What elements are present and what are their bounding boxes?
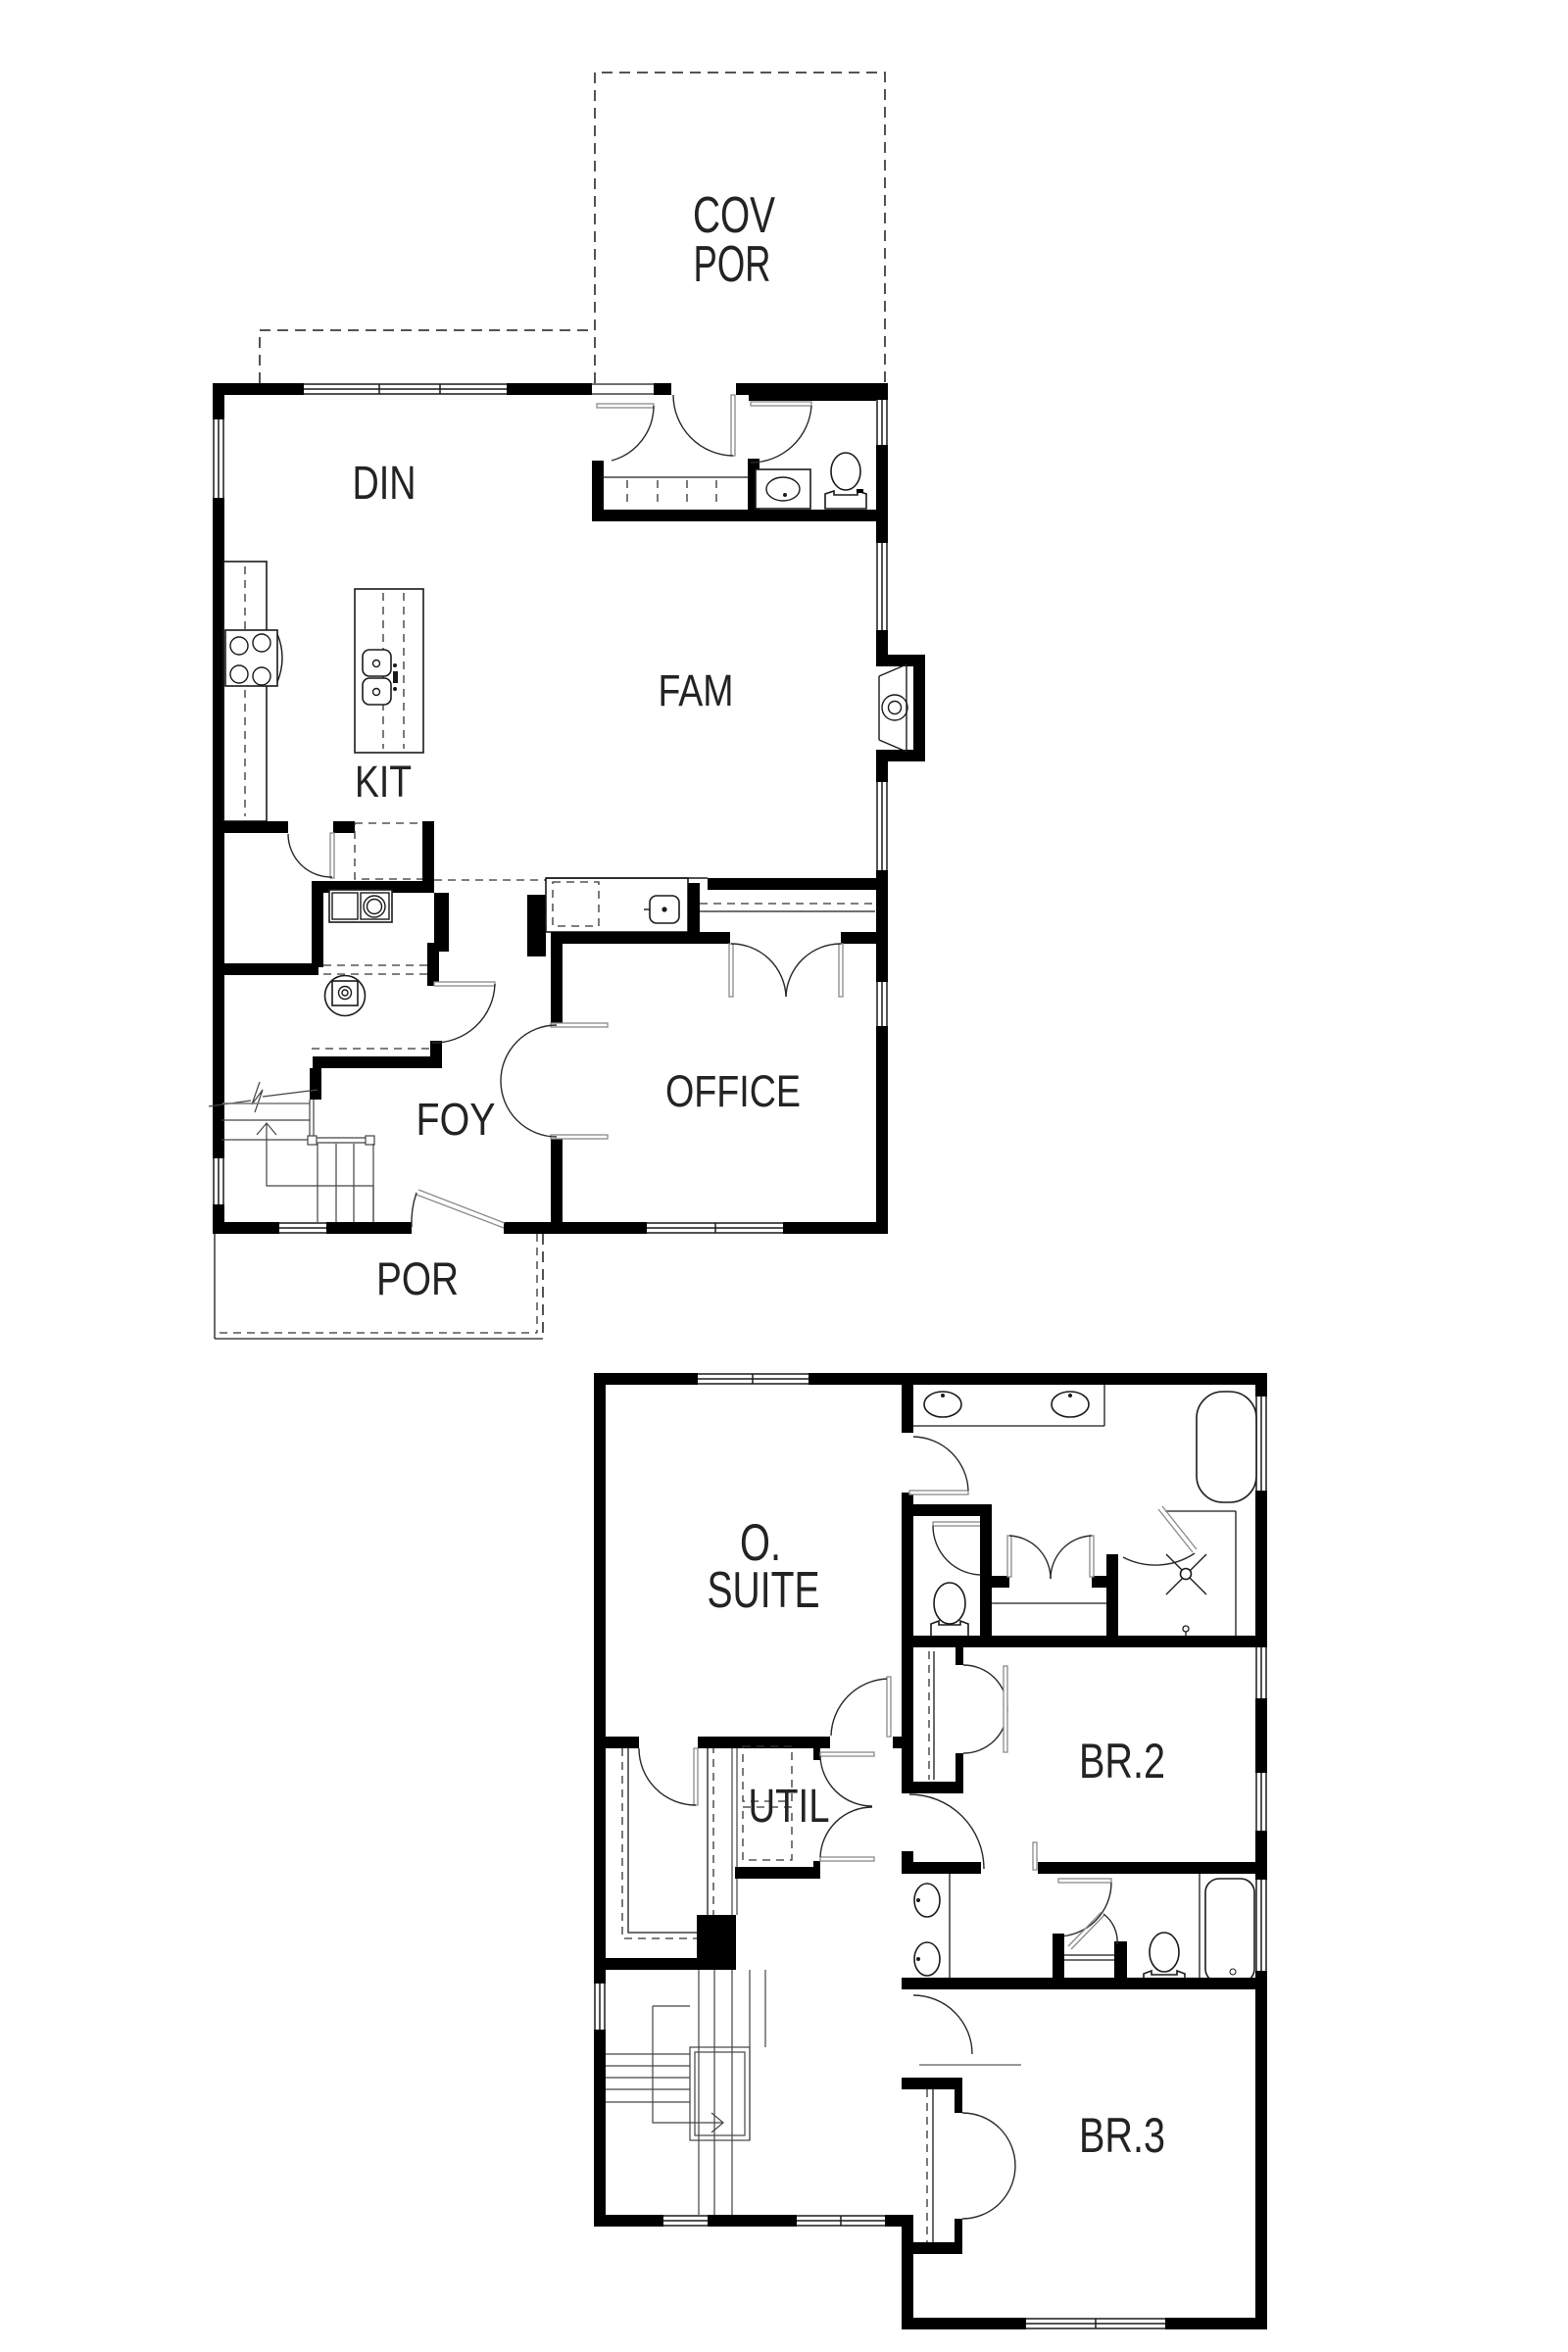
svg-text:KIT: KIT: [355, 757, 412, 807]
svg-text:UTIL: UTIL: [749, 1781, 830, 1833]
svg-text:FOY: FOY: [416, 1094, 496, 1145]
svg-text:FAM: FAM: [659, 665, 734, 715]
svg-text:POR: POR: [376, 1252, 459, 1304]
svg-text:POR: POR: [694, 236, 771, 293]
svg-text:BR.3: BR.3: [1079, 2108, 1165, 2163]
svg-text:BR.2: BR.2: [1079, 1734, 1165, 1788]
svg-text:SUITE: SUITE: [708, 1562, 820, 1619]
svg-text:OFFICE: OFFICE: [665, 1066, 801, 1116]
svg-text:DIN: DIN: [353, 458, 416, 510]
